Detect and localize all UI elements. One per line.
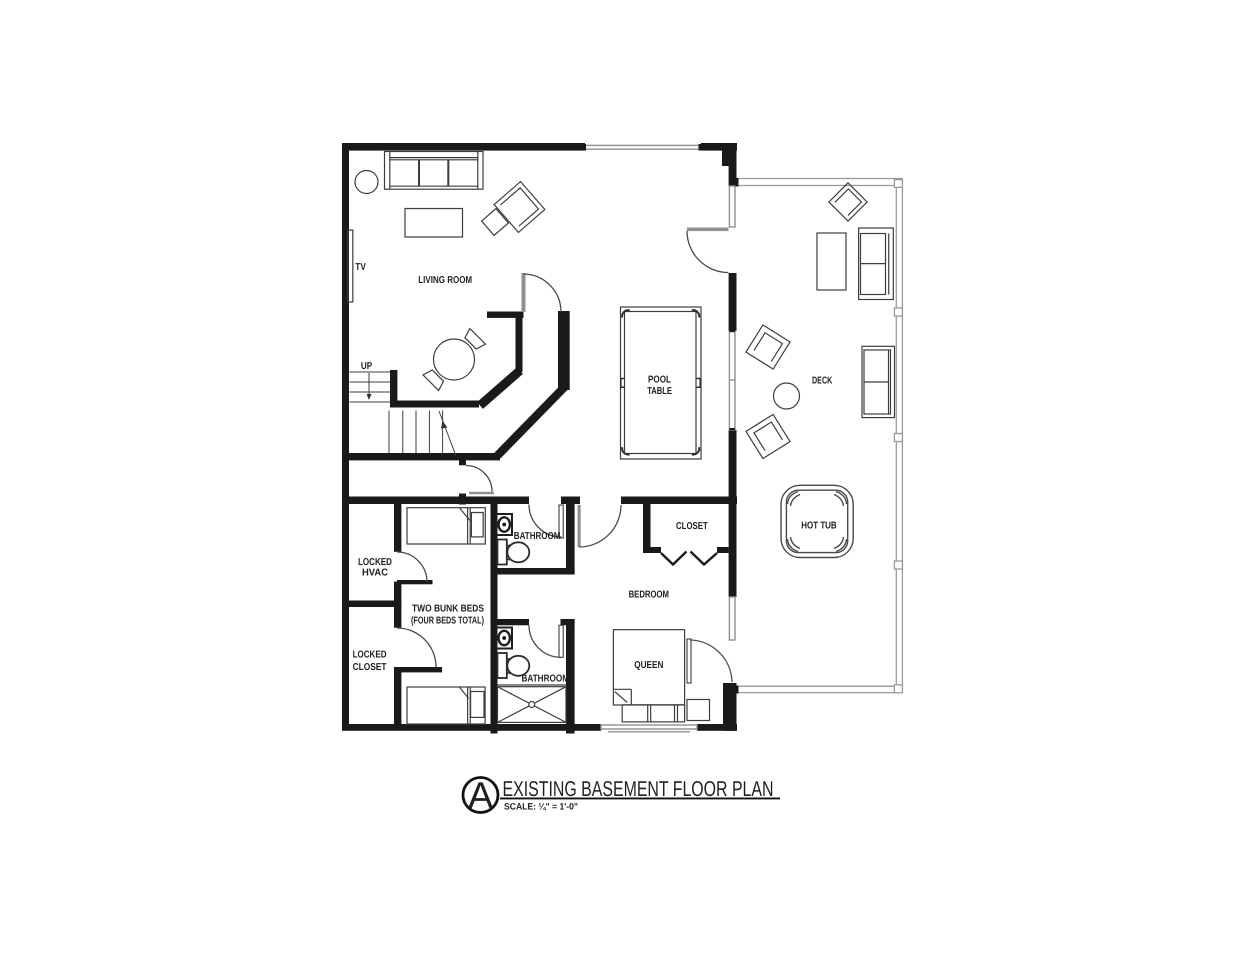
svg-text:EXISTING BASEMENT FLOOR PLAN: EXISTING BASEMENT FLOOR PLAN [503, 777, 774, 801]
svg-text:UP: UP [361, 361, 373, 372]
svg-text:TABLE: TABLE [647, 386, 672, 397]
svg-text:BATHROOM: BATHROOM [522, 674, 570, 685]
svg-text:LOCKED: LOCKED [353, 649, 387, 660]
svg-text:TWO BUNK BEDS: TWO BUNK BEDS [412, 604, 484, 615]
svg-text:BEDROOM: BEDROOM [629, 590, 669, 601]
svg-text:HVAC: HVAC [362, 568, 388, 579]
svg-text:POOL: POOL [648, 375, 671, 386]
svg-text:LIVING ROOM: LIVING ROOM [418, 275, 472, 286]
svg-text:(FOUR BEDS TOTAL): (FOUR BEDS TOTAL) [411, 616, 484, 627]
svg-text:CLOSET: CLOSET [676, 521, 708, 532]
svg-text:HOT TUB: HOT TUB [801, 521, 836, 532]
svg-text:A: A [468, 776, 494, 818]
svg-text:QUEEN: QUEEN [634, 660, 663, 671]
svg-text:LOCKED: LOCKED [358, 557, 392, 568]
svg-text:DECK: DECK [812, 376, 833, 387]
svg-text:BATHROOM: BATHROOM [514, 531, 561, 542]
svg-text:SCALE: ¼" = 1'-0": SCALE: ¼" = 1'-0" [504, 802, 578, 812]
svg-text:TV: TV [355, 262, 366, 273]
svg-text:CLOSET: CLOSET [353, 662, 387, 673]
